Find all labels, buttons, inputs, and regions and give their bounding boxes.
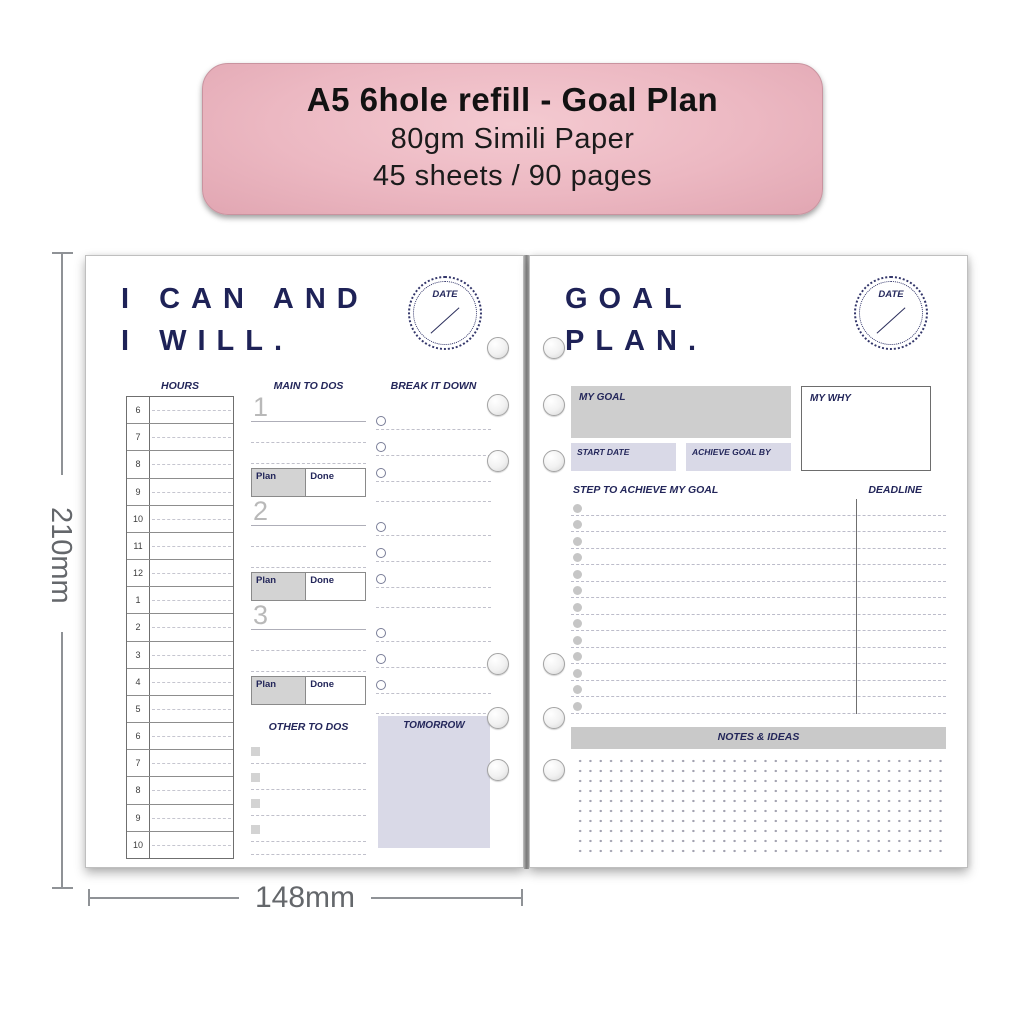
bullet-dot-icon: [573, 520, 582, 529]
hour-label: 3: [127, 642, 150, 668]
hour-cell: [150, 723, 233, 749]
hour-row: 10: [127, 505, 233, 532]
main-todo-number: 2: [251, 498, 366, 526]
hour-dash-line: [152, 763, 231, 764]
plan-cell: Plan: [252, 677, 306, 704]
product-image: A5 6hole refill - Goal Plan 80gm Simili …: [0, 0, 1024, 1024]
step-row: [571, 697, 946, 714]
deadline-header: DEADLINE: [830, 484, 922, 496]
other-todo-item: [251, 764, 366, 790]
write-line: [251, 547, 366, 568]
break-item: [376, 668, 491, 694]
binder-hole-icon: [487, 653, 509, 675]
hour-label: 9: [127, 805, 150, 831]
binder-hole-icon: [543, 653, 565, 675]
write-line: [376, 482, 491, 502]
date-stamp: DATE: [854, 276, 928, 350]
bullet-dot-icon: [573, 669, 582, 678]
hours-header: HOURS: [126, 380, 234, 392]
date-stamp-label: DATE: [854, 289, 928, 300]
break-it-down-header: BREAK IT DOWN: [376, 380, 491, 392]
bullet-circle-icon: [376, 574, 386, 584]
steps-header: STEP TO ACHIEVE MY GOAL: [573, 484, 718, 496]
bullet-dot-icon: [573, 570, 582, 579]
binder-hole-icon: [487, 337, 509, 359]
hour-dash-line: [152, 627, 231, 628]
other-todos-list: [251, 738, 366, 855]
step-row: [571, 664, 946, 681]
bullet-dot-icon: [573, 537, 582, 546]
break-item: [376, 430, 491, 456]
step-row: [571, 499, 946, 516]
hour-cell: [150, 642, 233, 668]
hour-row: 6: [127, 722, 233, 749]
goal-page-title: GOALPLAN.: [565, 278, 707, 362]
binder-hole-icon: [487, 394, 509, 416]
hour-cell: [150, 614, 233, 640]
my-why-label: MY WHY: [802, 387, 930, 404]
hours-table: 678910111212345678910: [126, 396, 234, 859]
daily-page-title: I CAN ANDI WILL.: [121, 278, 369, 362]
tomorrow-header: TOMORROW: [378, 716, 490, 731]
hour-cell: [150, 805, 233, 831]
main-todo-section: 2PlanDone: [251, 498, 366, 602]
hour-row: 3: [127, 641, 233, 668]
hour-row: 2: [127, 613, 233, 640]
plan-cell: Plan: [252, 573, 306, 600]
plan-cell: Plan: [252, 469, 306, 496]
bullet-circle-icon: [376, 416, 386, 426]
hour-label: 9: [127, 479, 150, 505]
main-todo-number: 1: [251, 394, 366, 422]
hour-cell: [150, 777, 233, 803]
step-row: [571, 615, 946, 632]
hour-cell: [150, 506, 233, 532]
hour-label: 5: [127, 696, 150, 722]
break-item: [376, 616, 491, 642]
binder-hole-icon: [487, 707, 509, 729]
hour-row: 4: [127, 668, 233, 695]
achieve-goal-by-field: ACHIEVE GOAL BY: [686, 443, 791, 471]
hour-row: 7: [127, 423, 233, 450]
other-todo-item: [251, 816, 366, 842]
binder-hole-icon: [543, 707, 565, 729]
goal-title-line2: PLAN.: [565, 325, 707, 357]
step-row: [571, 532, 946, 549]
hour-dash-line: [152, 655, 231, 656]
done-cell: Done: [306, 573, 365, 600]
hour-cell: [150, 587, 233, 613]
hour-row: 8: [127, 450, 233, 477]
write-line: [251, 651, 366, 672]
hour-cell: [150, 696, 233, 722]
hour-dash-line: [152, 709, 231, 710]
hour-dash-line: [152, 492, 231, 493]
hour-dash-line: [152, 600, 231, 601]
hour-row: 5: [127, 695, 233, 722]
bullet-circle-icon: [376, 680, 386, 690]
write-line: [251, 526, 366, 547]
hour-label: 2: [127, 614, 150, 640]
my-goal-label: MY GOAL: [571, 386, 791, 403]
bullet-dot-icon: [573, 586, 582, 595]
write-line: [251, 443, 366, 464]
hour-label: 12: [127, 560, 150, 586]
binder-hole-icon: [543, 450, 565, 472]
my-why-field: MY WHY: [801, 386, 931, 471]
hour-cell: [150, 669, 233, 695]
height-dimension-label: 210mm: [44, 480, 80, 630]
break-item: [376, 456, 491, 482]
bullet-dot-icon: [573, 685, 582, 694]
hour-dash-line: [152, 573, 231, 574]
steps-list: [571, 499, 946, 714]
hour-dash-line: [152, 682, 231, 683]
hour-label: 10: [127, 832, 150, 858]
bullet-circle-icon: [376, 442, 386, 452]
bullet-dot-icon: [573, 652, 582, 661]
hour-cell: [150, 479, 233, 505]
width-dimension-line: [371, 897, 522, 899]
width-dimension-line: [89, 897, 239, 899]
bullet-dot-icon: [573, 553, 582, 562]
checkbox-icon: [251, 799, 260, 808]
product-title: A5 6hole refill - Goal Plan: [203, 81, 822, 119]
hour-row: 12: [127, 559, 233, 586]
hour-label: 8: [127, 777, 150, 803]
bullet-dot-icon: [573, 702, 582, 711]
start-date-label: START DATE: [571, 443, 676, 457]
main-todo-section: 1PlanDone: [251, 394, 366, 498]
bullet-dot-icon: [573, 619, 582, 628]
break-group: [376, 510, 491, 608]
product-badge: A5 6hole refill - Goal Plan 80gm Simili …: [202, 63, 823, 215]
step-row: [571, 582, 946, 599]
hour-label: 8: [127, 451, 150, 477]
goal-title-line1: GOAL: [565, 283, 693, 315]
my-goal-field: MY GOAL: [571, 386, 791, 438]
checkbox-icon: [251, 747, 260, 756]
hour-dash-line: [152, 790, 231, 791]
break-item: [376, 536, 491, 562]
tomorrow-box: TOMORROW: [378, 716, 490, 848]
hour-row: 6: [127, 397, 233, 423]
hour-label: 6: [127, 723, 150, 749]
hour-row: 7: [127, 749, 233, 776]
binder-hole-icon: [487, 759, 509, 781]
hour-row: 1: [127, 586, 233, 613]
notes-ideas-header: NOTES & IDEAS: [571, 727, 946, 749]
date-stamp-label: DATE: [408, 289, 482, 300]
hour-label: 10: [127, 506, 150, 532]
checkbox-icon: [251, 825, 260, 834]
bullet-circle-icon: [376, 468, 386, 478]
break-group: [376, 616, 491, 714]
plan-done-box: PlanDone: [251, 572, 366, 601]
other-todo-item: [251, 790, 366, 816]
width-dimension-label: 148mm: [240, 881, 370, 915]
notes-dot-grid: [575, 756, 947, 854]
planner-page-goal: GOALPLAN. DATE MY GOAL MY WHY START DATE…: [529, 255, 968, 868]
step-row: [571, 598, 946, 615]
hour-dash-line: [152, 818, 231, 819]
other-todo-item: [251, 738, 366, 764]
main-todo-section: 3PlanDone: [251, 602, 366, 706]
step-row: [571, 516, 946, 533]
break-item: [376, 562, 491, 588]
step-row: [571, 648, 946, 665]
planner-page-daily: I CAN ANDI WILL. DATE HOURS MAIN TO DOS …: [85, 255, 524, 868]
hour-cell: [150, 560, 233, 586]
hour-label: 1: [127, 587, 150, 613]
hour-cell: [150, 424, 233, 450]
height-dimension-line: [61, 632, 63, 888]
bullet-circle-icon: [376, 628, 386, 638]
hour-dash-line: [152, 845, 231, 846]
checkbox-icon: [251, 773, 260, 782]
write-line: [251, 842, 366, 855]
hour-row: 11: [127, 532, 233, 559]
hour-row: 9: [127, 478, 233, 505]
binder-hole-icon: [543, 759, 565, 781]
hour-dash-line: [152, 736, 231, 737]
break-group: [376, 404, 491, 502]
main-todo-number: 3: [251, 602, 366, 630]
step-row: [571, 681, 946, 698]
step-row: [571, 565, 946, 582]
plan-done-box: PlanDone: [251, 676, 366, 705]
hour-dash-line: [152, 437, 231, 438]
hour-cell: [150, 750, 233, 776]
product-sheet-count: 45 sheets / 90 pages: [203, 160, 822, 193]
step-row: [571, 549, 946, 566]
hour-label: 7: [127, 750, 150, 776]
start-date-field: START DATE: [571, 443, 676, 471]
write-line: [251, 630, 366, 651]
hour-row: 8: [127, 776, 233, 803]
break-it-down-groups: [376, 404, 491, 722]
hour-label: 7: [127, 424, 150, 450]
other-todos-header: OTHER TO DOS: [251, 721, 366, 733]
write-line: [376, 588, 491, 608]
hour-row: 10: [127, 831, 233, 858]
hour-cell: [150, 832, 233, 858]
hour-dash-line: [152, 546, 231, 547]
write-line: [376, 694, 491, 714]
hour-cell: [150, 533, 233, 559]
height-dimension-cap-bottom: [52, 887, 73, 889]
hour-label: 6: [127, 397, 150, 423]
hour-label: 11: [127, 533, 150, 559]
main-todos-header: MAIN TO DOS: [251, 380, 366, 392]
binder-hole-icon: [543, 337, 565, 359]
done-cell: Done: [306, 469, 365, 496]
main-todos-sections: 1PlanDone2PlanDone3PlanDone: [251, 394, 366, 706]
daily-title-line2: I WILL.: [121, 325, 293, 357]
step-row: [571, 631, 946, 648]
bullet-dot-icon: [573, 504, 582, 513]
binder-hole-icon: [543, 394, 565, 416]
daily-title-line1: I CAN AND: [121, 283, 369, 315]
width-dimension-tick-right: [521, 889, 523, 906]
binder-hole-icon: [487, 450, 509, 472]
hour-row: 9: [127, 804, 233, 831]
achieve-goal-by-label: ACHIEVE GOAL BY: [686, 443, 791, 457]
done-cell: Done: [306, 677, 365, 704]
bullet-dot-icon: [573, 603, 582, 612]
hour-dash-line: [152, 519, 231, 520]
break-item: [376, 510, 491, 536]
height-dimension-line: [61, 253, 63, 475]
bullet-circle-icon: [376, 654, 386, 664]
product-paper-spec: 80gm Simili Paper: [203, 123, 822, 156]
break-item: [376, 404, 491, 430]
deadline-column-divider: [856, 499, 857, 714]
hour-cell: [150, 451, 233, 477]
bullet-dot-icon: [573, 636, 582, 645]
hour-cell: [150, 397, 233, 423]
write-line: [251, 422, 366, 443]
bullet-circle-icon: [376, 522, 386, 532]
break-item: [376, 642, 491, 668]
hour-dash-line: [152, 410, 231, 411]
bullet-circle-icon: [376, 548, 386, 558]
hour-dash-line: [152, 464, 231, 465]
date-stamp: DATE: [408, 276, 482, 350]
plan-done-box: PlanDone: [251, 468, 366, 497]
hour-label: 4: [127, 669, 150, 695]
